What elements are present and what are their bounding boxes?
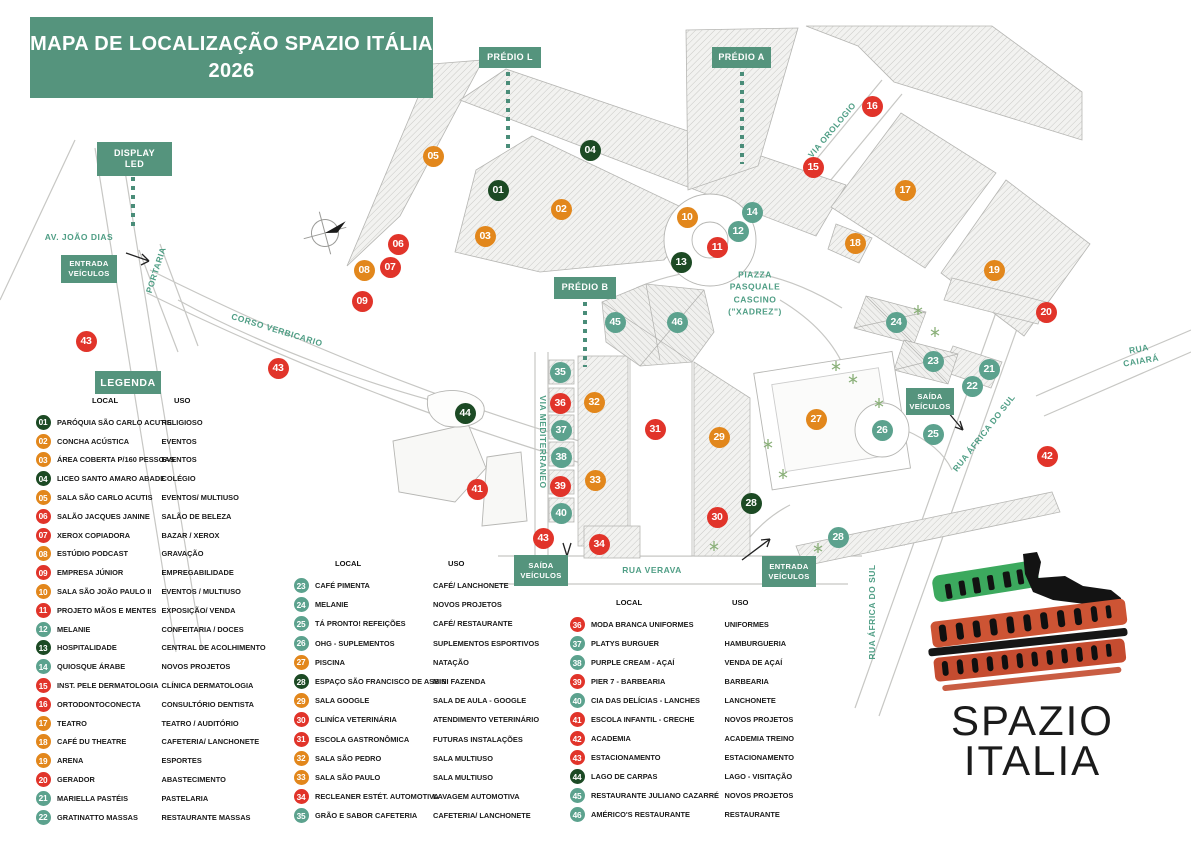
street-label: RUA ÁFRICA DO SUL	[866, 564, 878, 659]
legend-column-headers: LOCALUSO	[291, 555, 539, 576]
marker-46: 46	[667, 312, 688, 333]
legend-item-22: 22GRATINATTO MASSASRESTAURANTE MASSAS	[33, 808, 266, 827]
legend-item-local: EMPRESA JÚNIOR	[57, 568, 162, 577]
legend-item-26: 26OHG - SUPLEMENTOSSUPLEMENTOS ESPORTIVO…	[291, 634, 539, 653]
map-label-predio-l: PRÉDIO L	[479, 47, 541, 68]
legend-item-27: 27PISCINANATAÇÃO	[291, 653, 539, 672]
legend-item-number: 42	[567, 731, 587, 746]
legend-item-local: MELANIE	[57, 625, 162, 634]
legend-item-local: TEATRO	[57, 719, 162, 728]
legend-item-number: 08	[33, 546, 53, 561]
legend-item-number: 03	[33, 452, 53, 467]
marker-13: 13	[671, 252, 692, 273]
marker-28: 28	[741, 493, 762, 514]
legend-item-local: ÁREA COBERTA P/160 PESSOAS	[57, 455, 162, 464]
legend-item-uso: EVENTOS / MULTIUSO	[162, 587, 241, 596]
legend-item-16: 16ORTODONTOCONECTACONSULTÓRIO DENTISTA	[33, 695, 266, 714]
marker-21: 21	[979, 359, 1000, 380]
legend-item-number: 40	[567, 693, 587, 708]
legend-item-local: LICEO SANTO AMARO ABADE	[57, 474, 162, 483]
legend-item-local: GRÃO E SABOR CAFETERIA	[315, 811, 433, 820]
legend-item-31: 31ESCOLA GASTRONÔMICAFUTURAS INSTALAÇÕES	[291, 730, 539, 749]
legend-item-uso: ESTACIONAMENTO	[725, 753, 795, 762]
map-title-line1: MAPA DE LOCALIZAÇÃO SPAZIO ITÁLIA	[30, 31, 433, 57]
legend-item-uso: ACADEMIA TREINO	[725, 734, 795, 743]
legend-item-local: PROJETO MÃOS E MENTES	[57, 606, 162, 615]
legend-item-number: 14	[33, 659, 53, 674]
logo-line2: ITALIA	[925, 741, 1140, 781]
legend-item-04: 04LICEO SANTO AMARO ABADECOLÉGIO	[33, 469, 266, 488]
legend-item-34: 34RECLEANER ESTÉT. AUTOMOTIVALAVAGEM AUT…	[291, 787, 539, 806]
legend-item-number: 11	[33, 603, 53, 618]
legend-item-number: 31	[291, 732, 311, 747]
legend-item-uso: NOVOS PROJETOS	[433, 600, 502, 609]
legend-item-number: 04	[33, 471, 53, 486]
legend-item-number: 36	[567, 617, 587, 632]
legend-item-local: SALA SÃO PAULO	[315, 773, 433, 782]
legend-item-38: 38PURPLE CREAM - AÇAÍVENDA DE AÇAÍ	[567, 653, 794, 672]
legend-item-local: XEROX COPIADORA	[57, 531, 162, 540]
legend-item-uso: LANCHONETE	[725, 696, 776, 705]
legend-item-number: 25	[291, 616, 311, 631]
map-label-predio-b: PRÉDIO B	[554, 277, 616, 299]
legend-item-uso: BAZAR / XEROX	[162, 531, 220, 540]
legend-item-local: GERADOR	[57, 775, 162, 784]
legend-item-uso: RELIGIOSO	[162, 418, 203, 427]
legend-item-uso: TEATRO / AUDITÓRIO	[162, 719, 239, 728]
legend-column-1: LOCALUSO01PARÓQUIA SÃO CARLO ACUTISRELIG…	[33, 392, 266, 827]
legend-item-number: 26	[291, 636, 311, 651]
legend-item-uso: EVENTOS	[162, 455, 197, 464]
legend-item-local: ARENA	[57, 756, 162, 765]
legend-item-35: 35GRÃO E SABOR CAFETERIACAFETERIA/ LANCH…	[291, 806, 539, 825]
legend-item-number: 22	[33, 810, 53, 825]
map-label-display-led: DISPLAY LED	[97, 142, 172, 176]
legend-item-21: 21MARIELLA PASTÉISPASTELARIA	[33, 789, 266, 808]
legend-item-23: 23CAFÉ PIMENTACAFÉ/ LANCHONETE	[291, 576, 539, 595]
street-label: PIAZZA PASQUALE CASCINO ("XADREZ")	[728, 268, 782, 317]
legend-item-local: GRATINATTO MASSAS	[57, 813, 162, 822]
legend-item-local: ESTÚDIO PODCAST	[57, 549, 162, 558]
legend-header-local: LOCAL	[616, 598, 642, 607]
legend-item-local: AMÉRICO'S RESTAURANTE	[591, 810, 725, 819]
marker-37: 37	[551, 420, 572, 441]
legend-item-local: ESCOLA INFANTIL - CRECHE	[591, 715, 725, 724]
legend-item-local: SALA SÃO JOÃO PAULO II	[57, 587, 162, 596]
legend-item-number: 13	[33, 640, 53, 655]
legend-item-number: 02	[33, 434, 53, 449]
legend-header-local: LOCAL	[92, 396, 118, 405]
marker-30: 30	[707, 507, 728, 528]
legend-column-headers: LOCALUSO	[567, 594, 794, 615]
marker-17: 17	[895, 180, 916, 201]
legend-item-37: 37PLATYS BURGUERHAMBURGUERIA	[567, 634, 794, 653]
legend-item-40: 40CIA DAS DELÍCIAS - LANCHESLANCHONETE	[567, 691, 794, 710]
legend-item-number: 09	[33, 565, 53, 580]
legend-item-local: SALA SÃO CARLO ACUTIS	[57, 493, 162, 502]
marker-35: 35	[550, 362, 571, 383]
gate-label-saida-veiculos-leste: SAÍDA VEÍCULOS	[906, 388, 954, 415]
marker-44: 44	[455, 403, 476, 424]
legend-item-uso: CAFETERIA/ LANCHONETE	[162, 737, 260, 746]
legend-item-36: 36MODA BRANCA UNIFORMESUNIFORMES	[567, 615, 794, 634]
marker-09: 09	[352, 291, 373, 312]
marker-18: 18	[845, 233, 866, 254]
marker-31: 31	[645, 419, 666, 440]
legend-header-local: LOCAL	[335, 559, 361, 568]
legend-item-uso: SALÃO DE BELEZA	[162, 512, 232, 521]
legend-item-local: INST. PELE DERMATOLOGIA	[57, 681, 162, 690]
legend-item-local: PARÓQUIA SÃO CARLO ACUTIS	[57, 418, 162, 427]
legend-item-uso: CAFETERIA/ LANCHONETE	[433, 811, 531, 820]
legend-item-15: 15INST. PELE DERMATOLOGIACLÍNICA DERMATO…	[33, 676, 266, 695]
legend-item-local: PISCINA	[315, 658, 433, 667]
legend-item-number: 24	[291, 597, 311, 612]
marker-15: 15	[803, 157, 824, 178]
legend-item-uso: ESPORTES	[162, 756, 202, 765]
marker-12: 12	[728, 221, 749, 242]
legend-item-uso: EXPOSIÇÃO/ VENDA	[162, 606, 236, 615]
street-label: VIA MEDITERRANEO	[537, 395, 549, 488]
logo-line1: SPAZIO	[925, 701, 1140, 741]
legend-item-uso: SUPLEMENTOS ESPORTIVOS	[433, 639, 539, 648]
legend-item-25: 25TÁ PRONTO! REFEIÇÕESCAFÉ/ RESTAURANTE	[291, 614, 539, 633]
legend-item-01: 01PARÓQUIA SÃO CARLO ACUTISRELIGIOSO	[33, 413, 266, 432]
legend-item-uso: FUTURAS INSTALAÇÕES	[433, 735, 523, 744]
legend-item-28: 28ESPAÇO SÃO FRANCISCO DE ASSISMINI FAZE…	[291, 672, 539, 691]
legend-column-3: LOCALUSO36MODA BRANCA UNIFORMESUNIFORMES…	[567, 594, 794, 824]
legend-item-local: RECLEANER ESTÉT. AUTOMOTIVA	[315, 792, 433, 801]
legend-item-uso: ABASTECIMENTO	[162, 775, 226, 784]
legend-item-number: 12	[33, 622, 53, 637]
marker-36: 36	[550, 393, 571, 414]
legend-item-42: 42ACADEMIAACADEMIA TREINO	[567, 729, 794, 748]
marker-24: 24	[886, 312, 907, 333]
legend-item-number: 38	[567, 655, 587, 670]
marker-05: 05	[423, 146, 444, 167]
legend-item-local: OHG - SUPLEMENTOS	[315, 639, 433, 648]
legend-item-number: 44	[567, 769, 587, 784]
legend-item-local: RESTAURANTE JULIANO CAZARRÉ	[591, 791, 725, 800]
legend-item-uso: EVENTOS/ MULTIUSO	[162, 493, 239, 502]
marker-26: 26	[872, 420, 893, 441]
logo-wordmark: SPAZIO ITALIA	[925, 701, 1140, 782]
marker-34: 34	[589, 534, 610, 555]
marker-14: 14	[742, 202, 763, 223]
legend-item-03: 03ÁREA COBERTA P/160 PESSOASEVENTOS	[33, 451, 266, 470]
legend-item-number: 17	[33, 716, 53, 731]
legend-item-uso: GRAVAÇÃO	[162, 549, 204, 558]
marker-28: 28	[828, 527, 849, 548]
legend-item-29: 29SALA GOOGLESALA DE AULA - GOOGLE	[291, 691, 539, 710]
legend-item-number: 33	[291, 770, 311, 785]
legend-item-uso: ATENDIMENTO VETERINÁRIO	[433, 715, 539, 724]
marker-23: 23	[923, 351, 944, 372]
legend-item-number: 01	[33, 415, 53, 430]
legend-item-uso: LAVAGEM AUTOMOTIVA	[433, 792, 520, 801]
legend-item-32: 32SALA SÃO PEDROSALA MULTIUSO	[291, 749, 539, 768]
map-canvas: MAPA DE LOCALIZAÇÃO SPAZIO ITÁLIA 2026 P…	[0, 0, 1191, 843]
legend-item-local: CAFÉ DU THEATRE	[57, 737, 162, 746]
marker-20: 20	[1036, 302, 1057, 323]
legend-item-number: 05	[33, 490, 53, 505]
compass-icon	[298, 206, 353, 260]
legend-column-headers: LOCALUSO	[33, 392, 266, 413]
legend-item-09: 09EMPRESA JÚNIOREMPREGABILIDADE	[33, 563, 266, 582]
street-label: AV. JOÃO DIAS	[45, 231, 113, 243]
legend-item-number: 37	[567, 636, 587, 651]
legend-item-uso: CLÍNICA DERMATOLOGIA	[162, 681, 254, 690]
legend-item-number: 27	[291, 655, 311, 670]
marker-19: 19	[984, 260, 1005, 281]
marker-16: 16	[862, 96, 883, 117]
legend-item-07: 07XEROX COPIADORABAZAR / XEROX	[33, 526, 266, 545]
marker-33: 33	[585, 470, 606, 491]
legend-item-number: 20	[33, 772, 53, 787]
legend-item-number: 16	[33, 697, 53, 712]
marker-07: 07	[380, 257, 401, 278]
legend-item-uso: BARBEARIA	[725, 677, 769, 686]
marker-27: 27	[806, 409, 827, 430]
legend-item-local: TÁ PRONTO! REFEIÇÕES	[315, 619, 433, 628]
colosseum-illustration	[925, 552, 1140, 692]
legend-item-11: 11PROJETO MÃOS E MENTESEXPOSIÇÃO/ VENDA	[33, 601, 266, 620]
legend-item-local: SALA SÃO PEDRO	[315, 754, 433, 763]
legend-item-uso: CENTRAL DE ACOLHIMENTO	[162, 643, 266, 652]
legend-item-46: 46AMÉRICO'S RESTAURANTERESTAURANTE	[567, 805, 794, 824]
legend-item-02: 02CONCHA ACÚSTICAEVENTOS	[33, 432, 266, 451]
legend-item-local: ESTACIONAMENTO	[591, 753, 725, 762]
marker-38: 38	[551, 447, 572, 468]
legend-item-number: 46	[567, 807, 587, 822]
legend-item-43: 43ESTACIONAMENTOESTACIONAMENTO	[567, 748, 794, 767]
legend-item-uso: NATAÇÃO	[433, 658, 469, 667]
legend-item-uso: LAGO - VISITAÇÃO	[725, 772, 793, 781]
legend-item-number: 21	[33, 791, 53, 806]
legend-item-33: 33SALA SÃO PAULOSALA MULTIUSO	[291, 768, 539, 787]
spazio-italia-logo: SPAZIO ITALIA	[925, 552, 1140, 782]
legend-item-41: 41ESCOLA INFANTIL - CRECHENOVOS PROJETOS	[567, 710, 794, 729]
legend-item-local: PURPLE CREAM - AÇAÍ	[591, 658, 725, 667]
legend-item-number: 45	[567, 788, 587, 803]
marker-25: 25	[923, 424, 944, 445]
marker-41: 41	[467, 479, 488, 500]
legend-item-number: 15	[33, 678, 53, 693]
legend-item-45: 45RESTAURANTE JULIANO CAZARRÉNOVOS PROJE…	[567, 786, 794, 805]
legend-item-13: 13HOSPITALIDADECENTRAL DE ACOLHIMENTO	[33, 639, 266, 658]
marker-43: 43	[76, 331, 97, 352]
marker-11: 11	[707, 237, 728, 258]
map-title-line2: 2026	[30, 58, 433, 84]
legend-item-14: 14QUIOSQUE ÁRABENOVOS PROJETOS	[33, 657, 266, 676]
legend-item-number: 07	[33, 528, 53, 543]
legend-item-local: MARIELLA PASTÉIS	[57, 794, 162, 803]
marker-42: 42	[1037, 446, 1058, 467]
legend-item-number: 10	[33, 584, 53, 599]
legend-item-19: 19ARENAESPORTES	[33, 751, 266, 770]
legend-item-uso: CONFEITARIA / DOCES	[162, 625, 244, 634]
marker-02: 02	[551, 199, 572, 220]
legend-item-uso: MINI FAZENDA	[433, 677, 486, 686]
legend-item-10: 10SALA SÃO JOÃO PAULO IIEVENTOS / MULTIU…	[33, 582, 266, 601]
legend-item-number: 28	[291, 674, 311, 689]
legend-item-number: 39	[567, 674, 587, 689]
legend-item-18: 18CAFÉ DU THEATRECAFETERIA/ LANCHONETE	[33, 733, 266, 752]
legend-column-2: LOCALUSO23CAFÉ PIMENTACAFÉ/ LANCHONETE24…	[291, 555, 539, 825]
legend-item-local: MODA BRANCA UNIFORMES	[591, 620, 725, 629]
legend-item-uso: PASTELARIA	[162, 794, 209, 803]
legend-item-number: 23	[291, 578, 311, 593]
legend-item-05: 05SALA SÃO CARLO ACUTISEVENTOS/ MULTIUSO	[33, 488, 266, 507]
legend-item-30: 30CLINÍCA VETERINÁRIAATENDIMENTO VETERIN…	[291, 710, 539, 729]
marker-04: 04	[580, 140, 601, 161]
legend-item-local: ESCOLA GASTRONÔMICA	[315, 735, 433, 744]
legend-item-06: 06SALÃO JACQUES JANINESALÃO DE BELEZA	[33, 507, 266, 526]
legend-item-24: 24MELANIENOVOS PROJETOS	[291, 595, 539, 614]
marker-43: 43	[533, 528, 554, 549]
legend-item-local: ORTODONTOCONECTA	[57, 700, 162, 709]
legend-item-uso: NOVOS PROJETOS	[725, 715, 794, 724]
legend-item-number: 35	[291, 808, 311, 823]
legend-item-uso: CAFÉ/ RESTAURANTE	[433, 619, 513, 628]
legend-item-number: 32	[291, 751, 311, 766]
legend-item-uso: NOVOS PROJETOS	[725, 791, 794, 800]
marker-39: 39	[550, 476, 571, 497]
legend-item-local: LAGO DE CARPAS	[591, 772, 725, 781]
legend-item-local: CLINÍCA VETERINÁRIA	[315, 715, 433, 724]
marker-08: 08	[354, 260, 375, 281]
legend-item-local: QUIOSQUE ÁRABE	[57, 662, 162, 671]
legend-item-local: CIA DAS DELÍCIAS - LANCHES	[591, 696, 725, 705]
legend-item-number: 29	[291, 693, 311, 708]
marker-01: 01	[488, 180, 509, 201]
legend-item-number: 43	[567, 750, 587, 765]
legend-item-uso: SALA MULTIUSO	[433, 754, 493, 763]
legend-item-uso: NOVOS PROJETOS	[162, 662, 231, 671]
gate-label-entrada-veiculos-oeste: ENTRADA VEÍCULOS	[61, 255, 117, 283]
legend-item-08: 08ESTÚDIO PODCASTGRAVAÇÃO	[33, 545, 266, 564]
legend-header-uso: USO	[174, 396, 190, 405]
marker-45: 45	[605, 312, 626, 333]
gate-label-entrada-veiculos-sul: ENTRADA VEÍCULOS	[762, 556, 816, 587]
legend-item-uso: CONSULTÓRIO DENTISTA	[162, 700, 255, 709]
legend-item-local: PIER 7 - BARBEARIA	[591, 677, 725, 686]
marker-29: 29	[709, 427, 730, 448]
legend-item-number: 30	[291, 712, 311, 727]
street-label: RUA VERAVA	[622, 564, 682, 576]
legend-item-local: SALA GOOGLE	[315, 696, 433, 705]
legend-item-39: 39PIER 7 - BARBEARIABARBEARIA	[567, 672, 794, 691]
legend-item-uso: VENDA DE AÇAÍ	[725, 658, 783, 667]
legend-header-uso: USO	[448, 559, 464, 568]
legend-item-local: SALÃO JACQUES JANINE	[57, 512, 162, 521]
legend-item-uso: RESTAURANTE MASSAS	[162, 813, 251, 822]
legend-item-number: 06	[33, 509, 53, 524]
legend-item-uso: UNIFORMES	[725, 620, 769, 629]
legend-item-uso: EMPREGABILIDADE	[162, 568, 234, 577]
legend-item-uso: COLÉGIO	[162, 474, 196, 483]
legend-item-uso: SALA DE AULA - GOOGLE	[433, 696, 526, 705]
legend-item-local: CAFÉ PIMENTA	[315, 581, 433, 590]
legend-header-uso: USO	[732, 598, 748, 607]
legend-item-uso: HAMBURGUERIA	[725, 639, 787, 648]
map-label-predio-a: PRÉDIO A	[712, 47, 771, 68]
marker-40: 40	[551, 503, 572, 524]
legend-item-number: 41	[567, 712, 587, 727]
legend-item-44: 44LAGO DE CARPASLAGO - VISITAÇÃO	[567, 767, 794, 786]
legend-item-uso: CAFÉ/ LANCHONETE	[433, 581, 509, 590]
legend-item-12: 12MELANIECONFEITARIA / DOCES	[33, 620, 266, 639]
legend-item-local: MELANIE	[315, 600, 433, 609]
marker-22: 22	[962, 376, 983, 397]
legend-item-20: 20GERADORABASTECIMENTO	[33, 770, 266, 789]
legend-item-local: ACADEMIA	[591, 734, 725, 743]
legend-item-uso: SALA MULTIUSO	[433, 773, 493, 782]
legend-item-number: 19	[33, 753, 53, 768]
legend-item-number: 34	[291, 789, 311, 804]
marker-43: 43	[268, 358, 289, 379]
map-title: MAPA DE LOCALIZAÇÃO SPAZIO ITÁLIA 2026	[30, 17, 433, 98]
legend-item-uso: RESTAURANTE	[725, 810, 780, 819]
marker-10: 10	[677, 207, 698, 228]
legend-item-local: CONCHA ACÚSTICA	[57, 437, 162, 446]
legend-item-17: 17TEATROTEATRO / AUDITÓRIO	[33, 714, 266, 733]
legend-header: LEGENDA	[95, 371, 161, 394]
marker-32: 32	[584, 392, 605, 413]
marker-06: 06	[388, 234, 409, 255]
legend-item-number: 18	[33, 734, 53, 749]
legend-item-uso: EVENTOS	[162, 437, 197, 446]
legend-item-local: HOSPITALIDADE	[57, 643, 162, 652]
legend-item-local: ESPAÇO SÃO FRANCISCO DE ASSIS	[315, 677, 433, 686]
marker-03: 03	[475, 226, 496, 247]
legend-item-local: PLATYS BURGUER	[591, 639, 725, 648]
